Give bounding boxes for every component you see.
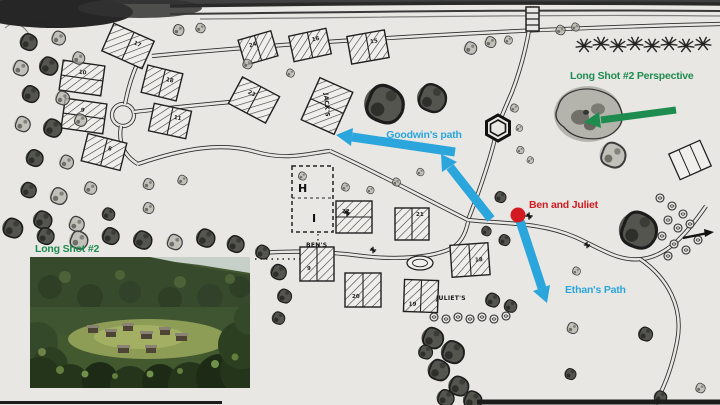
map-house: 19 <box>403 279 438 312</box>
ben-and-juliet-marker <box>511 208 526 223</box>
map-house: 21 <box>395 208 429 240</box>
map-house: 22 <box>336 201 372 233</box>
svg-text:10: 10 <box>78 70 87 77</box>
svg-text:20: 20 <box>352 294 360 300</box>
long-shot-perspective-label: Long Shot #2 Perspective <box>570 70 694 82</box>
pond <box>407 256 433 270</box>
map-house: 15 <box>347 30 389 64</box>
compound-mark-top: H <box>298 182 307 195</box>
svg-text:21: 21 <box>416 212 424 218</box>
ben-and-juliet-label: Ben and Juliet <box>529 199 599 211</box>
juliets-house-label: JULIET'S <box>435 295 466 302</box>
gazebo <box>487 115 510 141</box>
svg-text:9: 9 <box>307 266 311 272</box>
goodwins-path-label: Goodwin's path <box>386 129 462 141</box>
compound-mark-bottom: I <box>312 212 316 225</box>
ethans-path-label: Ethan's Path <box>565 284 626 296</box>
bridge <box>526 7 539 31</box>
svg-text:18: 18 <box>475 257 483 264</box>
bens-house-label: BEN'S <box>306 242 327 249</box>
annotated-map: 17 10 18 9 11 8 24 16 15 23 22 21 9 20 1… <box>0 0 720 405</box>
map-house: 9 <box>300 247 334 281</box>
slide: 17 10 18 9 11 8 24 16 15 23 22 21 9 20 1… <box>0 0 720 405</box>
inset-photo <box>18 257 272 405</box>
long-shot-tree <box>554 86 622 142</box>
map-house: 10 <box>59 60 105 96</box>
long-shot-caption: Long Shot #2 <box>35 243 99 255</box>
map-house: 18 <box>450 243 490 278</box>
map-house: 20 <box>345 273 381 307</box>
svg-text:19: 19 <box>409 302 417 308</box>
